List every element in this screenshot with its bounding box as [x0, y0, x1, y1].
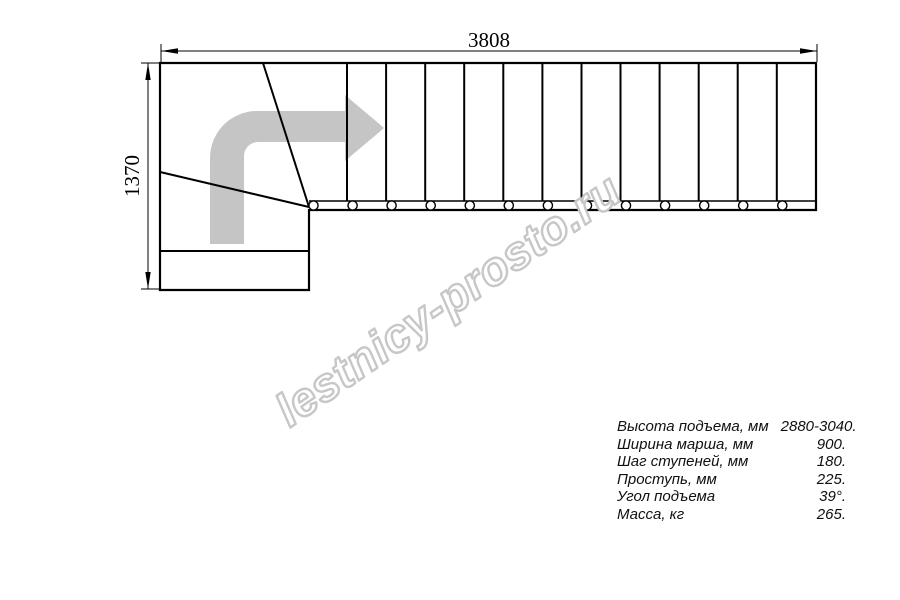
spec-value: 225.: [817, 471, 846, 489]
baluster-circle: [661, 201, 670, 210]
spec-row-flight-width: Ширина марша, мм 900.: [617, 436, 846, 454]
baluster-circle: [778, 201, 787, 210]
spec-label: Угол подъема: [617, 488, 715, 506]
spec-row-height: Высота подъема, мм 2880-3040.: [617, 418, 846, 436]
baluster-circle: [348, 201, 357, 210]
baluster-circle: [426, 201, 435, 210]
specs-table: Высота подъема, мм 2880-3040. Ширина мар…: [617, 418, 846, 523]
watermark-text: lestnicy-prosto.ru: [265, 163, 630, 437]
baluster-circle: [504, 201, 513, 210]
baluster-circle: [700, 201, 709, 210]
dim-arrowhead-up: [145, 63, 150, 80]
dim-arrowhead-left: [161, 48, 178, 53]
spec-value: 180.: [817, 453, 846, 471]
spec-row-tread: Проступь, мм 225.: [617, 471, 846, 489]
dim-arrowhead-right: [800, 48, 817, 53]
dim-arrowhead-down: [145, 272, 150, 289]
spec-label: Высота подъема, мм: [617, 418, 769, 436]
spec-value: 265.: [817, 506, 846, 524]
spec-row-step-rise: Шаг ступеней, мм 180.: [617, 453, 846, 471]
spec-row-mass: Масса, кг 265.: [617, 506, 846, 524]
spec-label: Шаг ступеней, мм: [617, 453, 748, 471]
spec-label: Проступь, мм: [617, 471, 717, 489]
baluster-circle: [387, 201, 396, 210]
spec-row-angle: Угол подъема 39°.: [617, 488, 846, 506]
height-dimension-label: 1370: [120, 155, 144, 197]
spec-label: Ширина марша, мм: [617, 436, 753, 454]
baluster-circle: [739, 201, 748, 210]
baluster-circle: [465, 201, 474, 210]
width-dimension-label: 3808: [468, 28, 510, 52]
spec-value: 900.: [817, 436, 846, 454]
stair-plan-page: 3808 1370 lestnicy-prosto.ru Высота подъ…: [0, 0, 900, 600]
baluster-circle: [309, 201, 318, 210]
spec-value: 2880-3040.: [781, 418, 857, 436]
spec-label: Масса, кг: [617, 506, 684, 524]
spec-value: 39°.: [819, 488, 846, 506]
